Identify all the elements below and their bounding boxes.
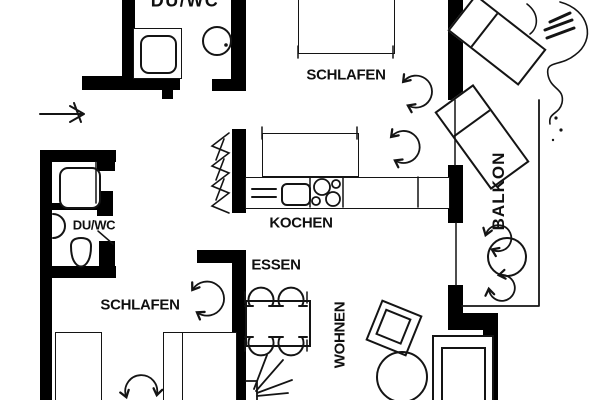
dining-chair-icon bbox=[245, 288, 307, 356]
label-dining: ESSEN bbox=[251, 257, 300, 274]
shaft-hatch-icon bbox=[212, 133, 229, 213]
sink-drainer-icon bbox=[252, 189, 276, 197]
door-leaf-line bbox=[98, 231, 113, 244]
label-bedroom-bottom: SCHLAFEN bbox=[100, 297, 179, 314]
label-living: WOHNEN bbox=[332, 302, 349, 369]
label-balcony: BALKON bbox=[489, 152, 509, 231]
plan-linework bbox=[0, 0, 600, 400]
entrance-arrow-icon bbox=[40, 103, 84, 122]
coffee-table-icon bbox=[377, 352, 427, 400]
washbasin-icon bbox=[53, 214, 65, 238]
balcony-chair-arc bbox=[486, 225, 515, 301]
label-bath-left: DU/WC bbox=[73, 218, 116, 233]
stove-icon bbox=[312, 179, 340, 206]
floor-plan: DU/WC SCHLAFEN BALKON KOCHEN DU/WC SCHLA… bbox=[0, 0, 600, 400]
washbasin-icon bbox=[203, 27, 231, 55]
plant-icon bbox=[246, 355, 292, 400]
label-bedroom-top: SCHLAFEN bbox=[306, 67, 385, 84]
balcony-door-line bbox=[455, 100, 456, 285]
label-kitchen: KOCHEN bbox=[269, 215, 332, 232]
balcony-table-icon bbox=[488, 238, 526, 276]
toilet-icon bbox=[71, 238, 91, 267]
balcony-plant-icon bbox=[527, 2, 587, 141]
label-bath-top: DU/WC bbox=[151, 0, 220, 12]
